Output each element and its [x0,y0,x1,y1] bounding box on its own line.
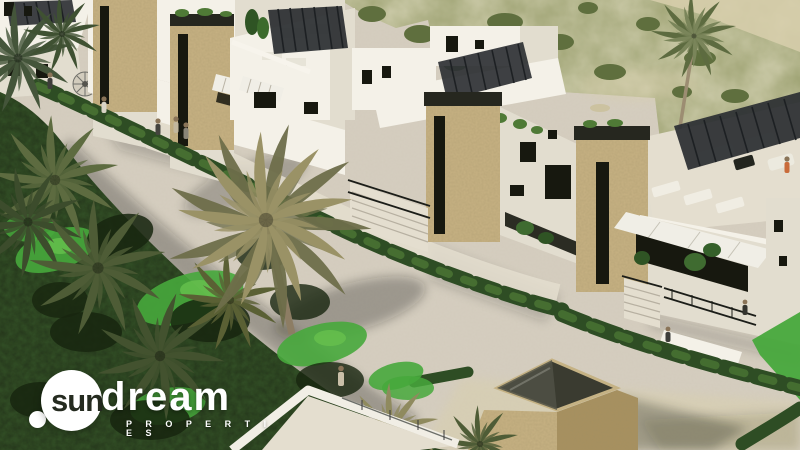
aerial-villa-render: sun dream P R O P E R T I E S [0,0,800,450]
stone-tower-right [574,119,650,292]
tower-window-slit [434,116,445,234]
villa-roof-lounge [230,6,355,120]
render-scene [0,0,800,450]
tower-window-slit [100,6,109,104]
tower-window-slit [596,162,609,284]
stone-tower-center [424,92,502,242]
pergola [268,6,348,54]
